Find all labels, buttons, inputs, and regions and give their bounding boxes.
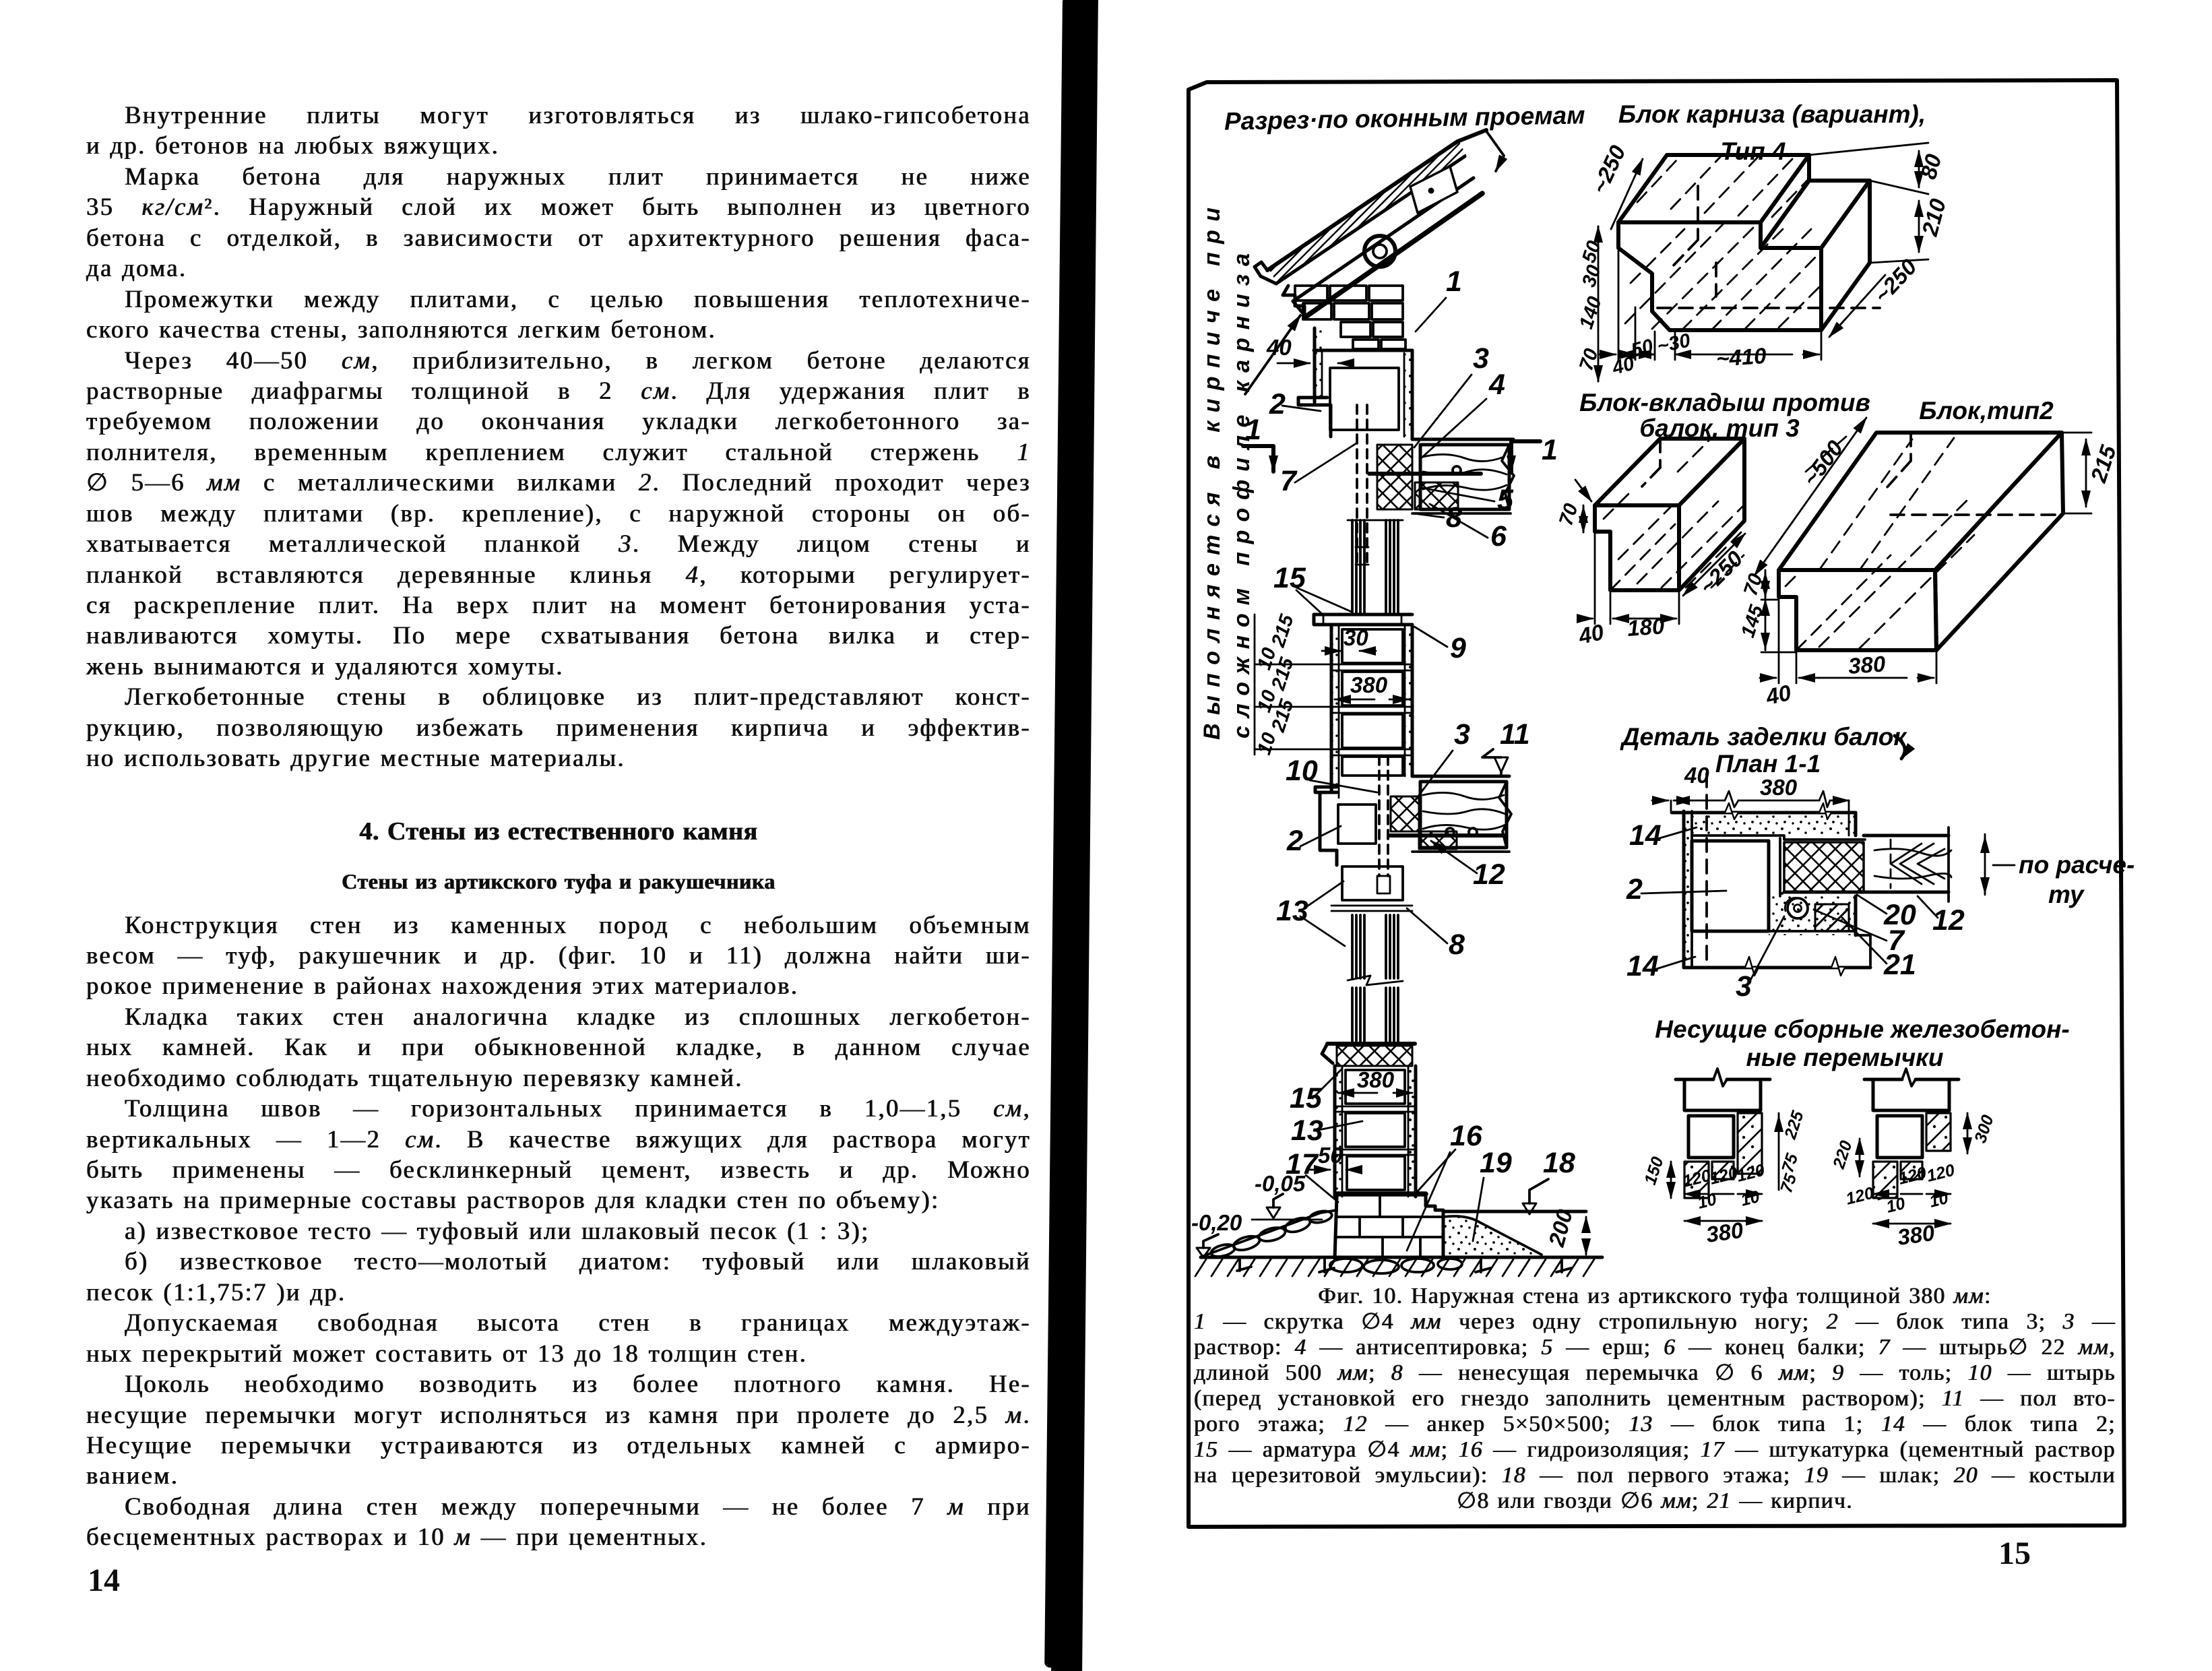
svg-text:215: 215 — [2085, 442, 2121, 486]
svg-text:80: 80 — [1916, 151, 1946, 182]
svg-text:70: 70 — [1555, 501, 1582, 529]
svg-text:по расче-: по расче- — [2019, 851, 2135, 879]
svg-text:225: 225 — [1781, 1108, 1808, 1141]
svg-text:145: 145 — [1737, 602, 1768, 640]
svg-text:Разрез·по оконным проемам: Разрез·по оконным проемам — [1224, 101, 1585, 135]
svg-text:10: 10 — [1253, 730, 1280, 758]
svg-text:380: 380 — [1357, 1067, 1395, 1092]
svg-text:2: 2 — [1286, 825, 1303, 857]
svg-text:50: 50 — [1578, 239, 1605, 266]
svg-text:10: 10 — [1739, 1187, 1762, 1210]
svg-text:210: 210 — [1917, 195, 1951, 239]
svg-text:ные перемычки: ные перемычки — [1746, 1044, 1943, 1071]
svg-text:3: 3 — [1736, 970, 1752, 1003]
svg-text:3: 3 — [1454, 718, 1470, 751]
svg-text:~250: ~250 — [1587, 141, 1631, 197]
svg-text:120: 120 — [1844, 1184, 1876, 1209]
svg-text:50: 50 — [1318, 1143, 1343, 1168]
svg-text:18: 18 — [1543, 1147, 1575, 1179]
svg-text:19: 19 — [1480, 1147, 1512, 1179]
svg-text:1: 1 — [1245, 414, 1261, 446]
svg-text:21: 21 — [1883, 949, 1916, 981]
svg-text:380: 380 — [1896, 1220, 1936, 1250]
svg-text:6: 6 — [1490, 520, 1507, 553]
svg-text:300: 300 — [1971, 1112, 1998, 1145]
svg-text:380: 380 — [1847, 651, 1887, 679]
svg-text:5: 5 — [1497, 484, 1514, 516]
svg-text:40: 40 — [1763, 680, 1794, 710]
svg-text:ту: ту — [2048, 881, 2085, 908]
svg-text:1: 1 — [1542, 434, 1558, 466]
svg-text:11: 11 — [1500, 718, 1530, 751]
svg-text:9: 9 — [1450, 632, 1466, 664]
svg-text:4: 4 — [1488, 369, 1505, 401]
svg-text:Блок карниза (вариант),: Блок карниза (вариант), — [1618, 100, 1926, 128]
svg-text:10: 10 — [1286, 755, 1318, 787]
svg-text:Деталь заделки балок: Деталь заделки балок — [1620, 723, 1908, 751]
svg-text:180: 180 — [1626, 613, 1666, 641]
svg-text:12: 12 — [1932, 904, 1965, 937]
svg-text:Блок,тип2: Блок,тип2 — [1919, 397, 2054, 424]
svg-text:13: 13 — [1276, 895, 1308, 927]
svg-text:-0,05: -0,05 — [1255, 1171, 1306, 1196]
svg-text:7: 7 — [1280, 465, 1298, 497]
svg-text:12: 12 — [1473, 858, 1505, 891]
svg-text:сложном профиле карниза: сложном профиле карниза — [1229, 253, 1255, 738]
svg-text:16: 16 — [1450, 1120, 1483, 1152]
svg-text:1: 1 — [1446, 265, 1462, 298]
svg-text:14: 14 — [1629, 819, 1662, 852]
svg-text:8: 8 — [1449, 928, 1465, 961]
svg-text:40: 40 — [1576, 619, 1606, 649]
svg-text:30: 30 — [1578, 263, 1605, 290]
svg-text:Несущие сборные железобетон-: Несущие сборные железобетон- — [1655, 1015, 2070, 1043]
svg-text:40: 40 — [1266, 335, 1292, 360]
svg-text:2: 2 — [1626, 873, 1643, 906]
svg-text:14: 14 — [1626, 950, 1659, 982]
svg-text:3: 3 — [1473, 342, 1489, 375]
svg-text:План 1-1: План 1-1 — [1715, 750, 1821, 778]
svg-text:50: 50 — [1629, 336, 1655, 362]
svg-text:220: 220 — [1829, 1138, 1856, 1171]
svg-text:Блок-вкладыш против: Блок-вкладыш против — [1579, 389, 1870, 416]
svg-text:380: 380 — [1760, 775, 1798, 800]
svg-text:215: 215 — [1267, 611, 1298, 650]
svg-text:380: 380 — [1350, 672, 1388, 697]
svg-text:140: 140 — [1575, 294, 1606, 332]
svg-text:70: 70 — [1740, 571, 1767, 599]
svg-text:10: 10 — [1928, 1189, 1951, 1211]
svg-text:120: 120 — [1925, 1161, 1957, 1186]
svg-text:10: 10 — [1885, 1194, 1907, 1217]
svg-text:-0,20: -0,20 — [1191, 1210, 1242, 1235]
svg-text:8: 8 — [1446, 501, 1462, 534]
svg-text:15: 15 — [1290, 1082, 1323, 1114]
svg-text:150: 150 — [1641, 1154, 1668, 1187]
svg-text:75: 75 — [1777, 1171, 1801, 1195]
svg-text:Выполняется в кирпиче при: Выполняется в кирпиче при — [1199, 208, 1225, 740]
svg-text:2: 2 — [1269, 388, 1286, 420]
svg-text:380: 380 — [1705, 1218, 1745, 1247]
svg-text:75: 75 — [1778, 1151, 1802, 1175]
svg-text:~410: ~410 — [1715, 343, 1767, 371]
